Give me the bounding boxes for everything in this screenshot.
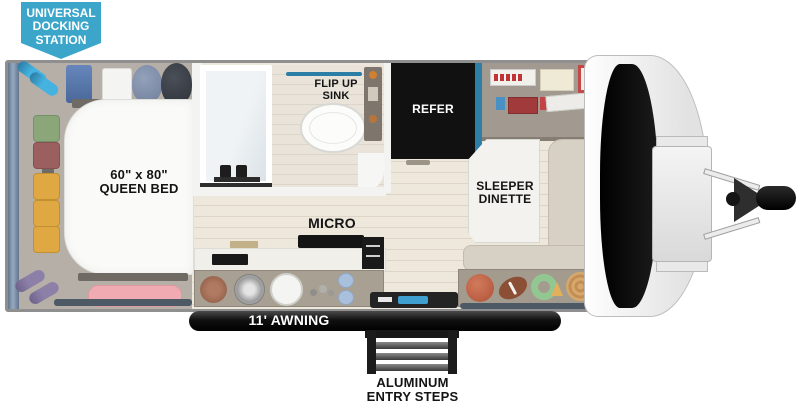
bathroom-area: FLIP UP SINK [272, 65, 384, 191]
bath-kitchen-wall [192, 187, 386, 196]
bath-refer-wall [384, 63, 391, 193]
toilet-icon [300, 103, 366, 153]
microwave-icon [298, 235, 364, 248]
propane-tank-cover [652, 146, 712, 262]
cooktop-icon [212, 254, 248, 265]
hanging-shirt-yellow-icon [33, 173, 60, 200]
queen-bed: 60" x 80" QUEEN BED [64, 99, 194, 275]
game-pieces [494, 74, 522, 81]
steps-tread [376, 353, 448, 360]
dinette-label: SLEEPER DINETTE [469, 180, 541, 206]
badge-line-2: DOCKING [21, 20, 101, 33]
refer-handle [406, 160, 430, 165]
hanging-shirt-red-icon [33, 142, 60, 169]
dinette-table: SLEEPER DINETTE [468, 139, 540, 243]
football-stripe [508, 281, 517, 295]
foot-shelf [78, 273, 188, 281]
utensil-icon [310, 289, 317, 296]
windshield-band [600, 64, 658, 308]
shower [200, 65, 272, 187]
steps-label-line-2: ENTRY STEPS [345, 390, 480, 404]
trailer-body: 60" x 80" QUEEN BED [5, 60, 613, 312]
game-piece-red [508, 97, 538, 114]
badge-line-3: STATION [21, 34, 101, 47]
awning-label: 11' AWNING [214, 313, 364, 328]
queen-bed-label: 60" x 80" QUEEN BED [85, 168, 193, 196]
hanging-shirt-green-icon [33, 115, 60, 142]
panel-line [366, 255, 380, 257]
white-shirt-icon [102, 68, 132, 103]
shower-base [214, 177, 260, 182]
steps-tread [376, 364, 448, 371]
entry-steps [365, 330, 459, 374]
cabinet-item [368, 87, 378, 101]
bath-corner-wall [358, 153, 384, 191]
propane-flap-bottom [656, 261, 708, 272]
dinette-label-line-1: SLEEPER [469, 180, 541, 193]
hanging-shirt-yellow-icon [33, 200, 60, 227]
steps-label-line-1: ALUMINUM [345, 376, 480, 390]
toilet-bowl [309, 112, 357, 144]
notepad-icon [540, 69, 574, 91]
towel-bar [286, 72, 362, 76]
steps-rail [367, 330, 376, 374]
range-control-panel [362, 237, 384, 269]
utensil-icon [328, 290, 334, 296]
door-mat-tag [378, 297, 392, 302]
refer-label: REFER [391, 103, 475, 116]
bed-base-rail [54, 299, 192, 306]
jeans-icon [66, 65, 92, 103]
floorplan-canvas: UNIVERSAL DOCKING STATION [0, 0, 800, 406]
steps-tread [376, 342, 448, 349]
hitch-knob [726, 192, 740, 206]
cup-icon [338, 290, 354, 305]
dinette-label-line-2: DINETTE [469, 193, 541, 206]
refrigerator: REFER [391, 63, 475, 159]
kitchen-sink-icon [270, 273, 303, 306]
cup-icon [338, 273, 354, 288]
bowl-icon [200, 276, 227, 303]
badge-line-1: UNIVERSAL [21, 7, 101, 20]
panel-line [366, 245, 380, 247]
refer-side-trim [475, 63, 482, 159]
steps-platform [365, 330, 459, 338]
bed-name-text: QUEEN BED [85, 182, 193, 196]
bath-cabinet [364, 67, 382, 141]
door-mat-panel [398, 296, 428, 304]
game-piece-blue [496, 97, 505, 110]
steps-rail [448, 330, 457, 374]
cabinet-knob-icon [369, 71, 377, 79]
universal-docking-station-badge: UNIVERSAL DOCKING STATION [21, 2, 101, 59]
burner-icon [234, 274, 265, 305]
bedroom-area: 60" x 80" QUEEN BED [8, 63, 192, 309]
hitch-jack-handle [756, 186, 796, 210]
blue-cap-icon [132, 65, 162, 103]
basketball-icon [466, 274, 494, 302]
micro-label: MICRO [300, 216, 364, 231]
game-box-icon [490, 69, 536, 86]
steps-label: ALUMINUM ENTRY STEPS [345, 376, 480, 404]
bed-size-text: 60" x 80" [85, 168, 193, 182]
hanging-shirt-yellow-icon [33, 226, 60, 253]
bedroom-window [8, 63, 19, 309]
ring-toy-icon [531, 274, 557, 300]
utensil-icon [319, 285, 327, 293]
cabinet-knob-icon [369, 115, 377, 123]
door-mat [370, 292, 458, 308]
